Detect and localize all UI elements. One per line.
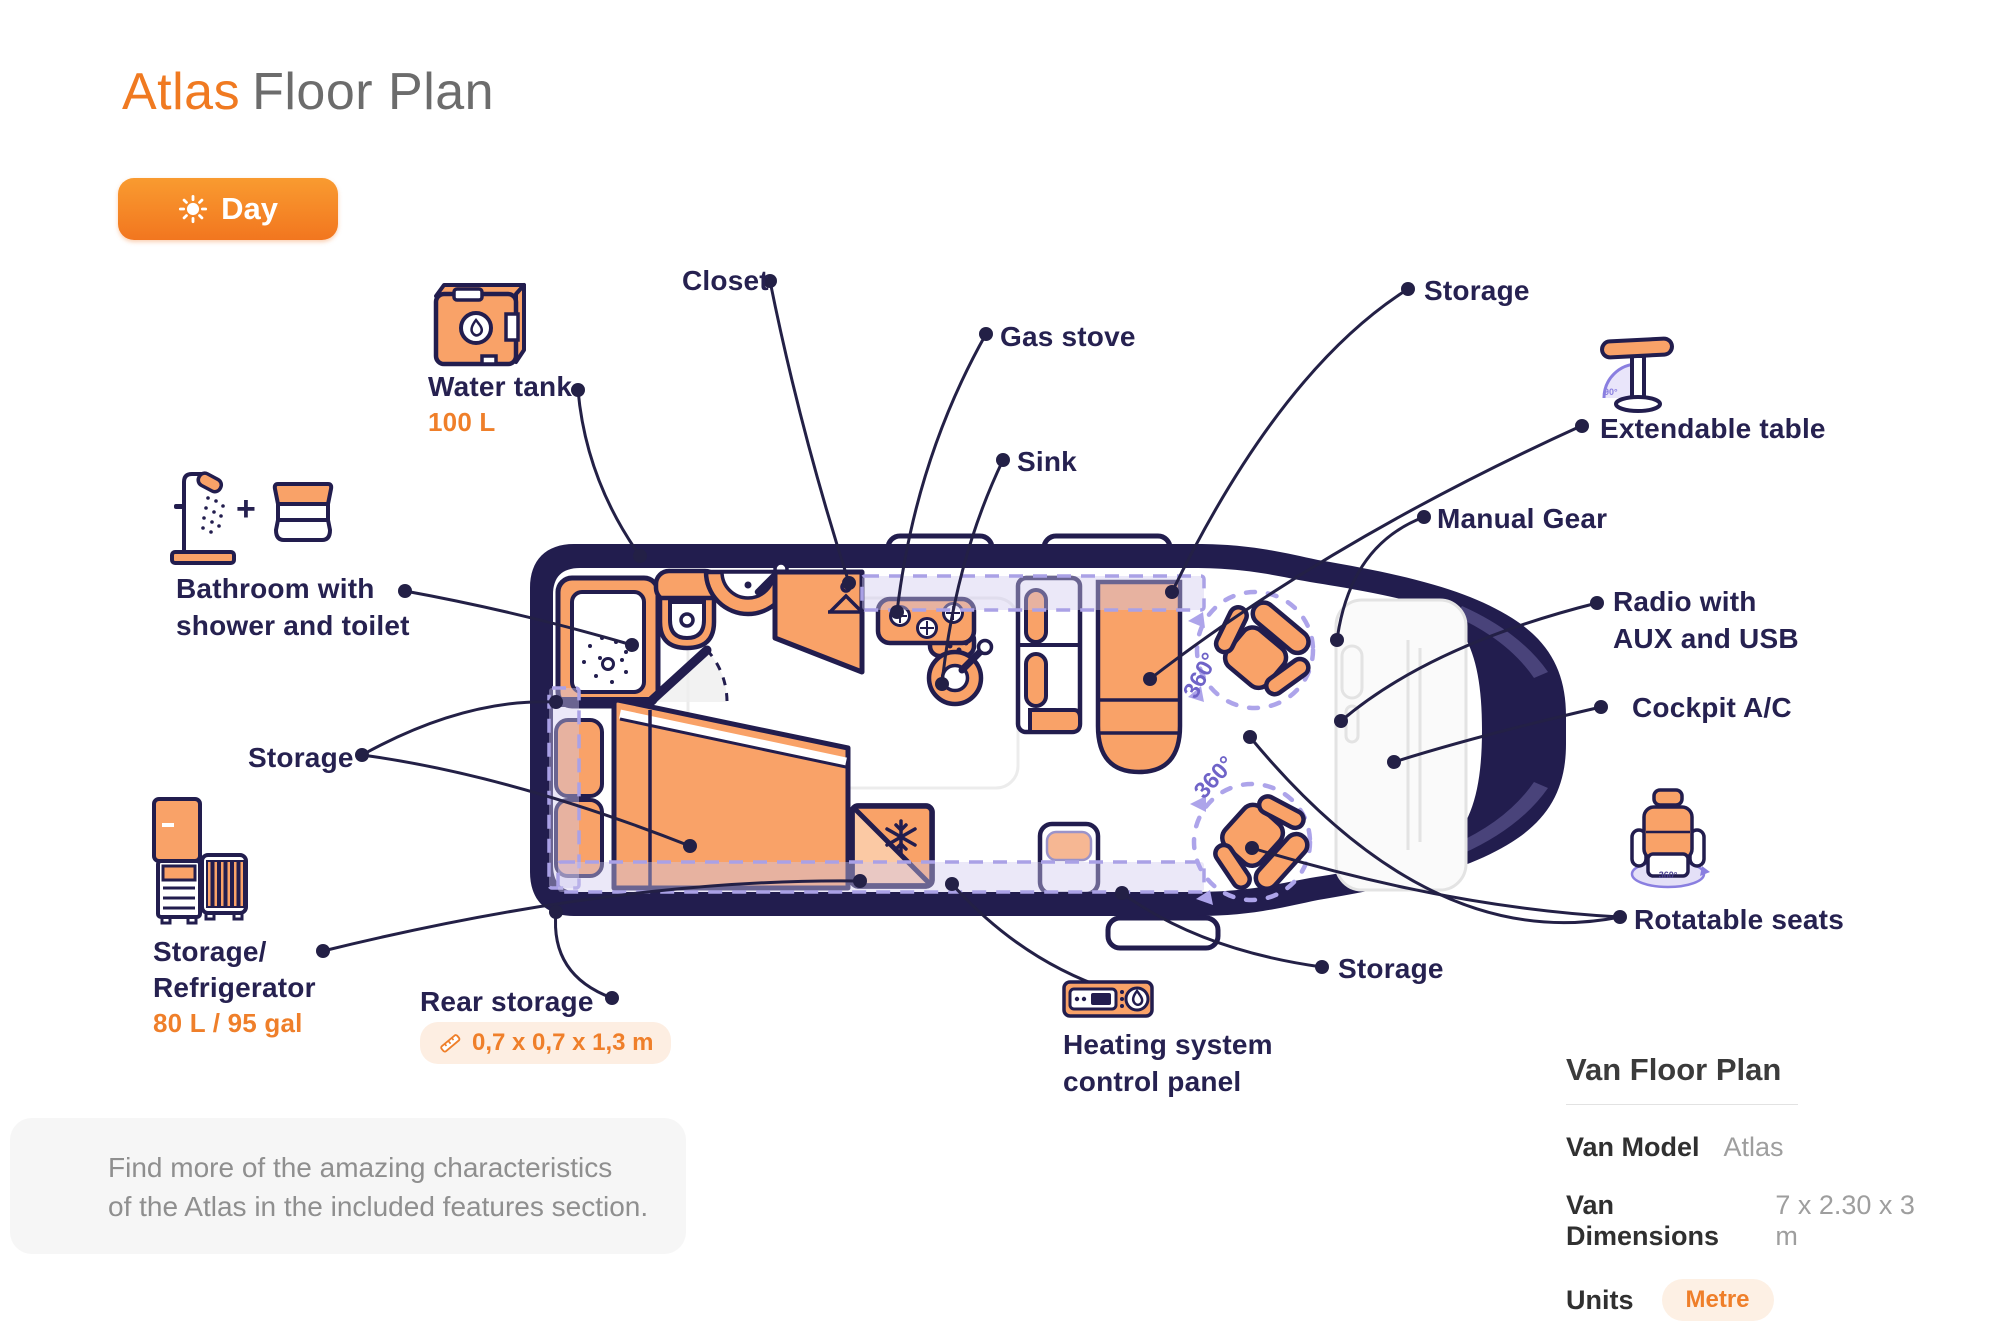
callout-storage-left-a: [362, 702, 556, 755]
van-dimensions-value: 7 x 2.30 x 3 m: [1775, 1190, 1926, 1252]
van-model-value: Atlas: [1724, 1132, 1784, 1163]
page: AtlasFloor Plan Day: [0, 0, 2000, 1334]
van-model-row: Van Model Atlas: [1566, 1132, 1926, 1163]
toilet-icon: [270, 480, 336, 548]
bathroom-label: Bathroom with shower and toilet: [176, 570, 410, 644]
features-note: Find more of the amazing characteristics…: [10, 1118, 686, 1254]
heating-panel-icon: [1062, 980, 1154, 1020]
heating-label: Heating system control panel: [1063, 1026, 1273, 1100]
features-note-line2: of the Atlas in the included features se…: [108, 1187, 686, 1226]
rear-storage-dimensions: 0,7 x 0,7 x 1,3 m: [472, 1029, 653, 1057]
table-angle-text: 90°: [1604, 387, 1618, 397]
seat-rotation-text: 360°: [1659, 870, 1678, 880]
refrigerator-capacity: 80 L / 95 gal: [153, 1006, 316, 1040]
radio-label: Radio with AUX and USB: [1613, 583, 1799, 657]
storage-top-label: Storage: [1424, 272, 1530, 309]
van-info-panel: Van Floor Plan Van Model Atlas Van Dimen…: [1566, 1052, 1926, 1321]
closet-label: Closet: [682, 262, 769, 299]
rotatable-seats-label: Rotatable seats: [1634, 901, 1844, 938]
shower-icon: [170, 468, 242, 568]
van-dimensions-row: Van Dimensions 7 x 2.30 x 3 m: [1566, 1190, 1926, 1252]
water-tank-label: Water tank 100 L: [428, 368, 572, 439]
refrigerator-label-line1: Storage/: [153, 934, 316, 970]
shower-spray: [201, 496, 225, 534]
ruler-icon: [438, 1031, 462, 1055]
units-label: Units: [1566, 1285, 1634, 1316]
storage-left-label: Storage: [248, 739, 354, 776]
bathroom-label-line2: shower and toilet: [176, 607, 410, 644]
callout-closet: [770, 281, 849, 583]
divider: [1566, 1104, 1798, 1105]
heating-label-line2: control panel: [1063, 1063, 1273, 1100]
van-dimensions-label: Van Dimensions: [1566, 1190, 1751, 1252]
sink-label: Sink: [1017, 443, 1077, 480]
callout-water-tank: [578, 390, 640, 556]
storage-cab-label: Storage: [1338, 950, 1444, 987]
rear-storage-dimensions-badge: 0,7 x 0,7 x 1,3 m: [420, 1022, 671, 1064]
van-info-title: Van Floor Plan: [1566, 1052, 1926, 1088]
water-tank-name: Water tank: [428, 368, 572, 405]
features-note-line1: Find more of the amazing characteristics: [108, 1148, 686, 1187]
extendable-table-label: Extendable table: [1600, 410, 1826, 447]
cockpit-ac-label: Cockpit A/C: [1632, 689, 1792, 726]
radio-label-line2: AUX and USB: [1613, 620, 1799, 657]
refrigerator-icon: [150, 795, 250, 927]
radio-label-line1: Radio with: [1613, 583, 1799, 620]
units-row: Units Metre: [1566, 1279, 1926, 1321]
van-model-label: Van Model: [1566, 1132, 1700, 1163]
gas-stove-label: Gas stove: [1000, 318, 1136, 355]
heating-label-line1: Heating system: [1063, 1026, 1273, 1063]
water-tank-capacity: 100 L: [428, 405, 572, 439]
refrigerator-label: Storage/ Refrigerator 80 L / 95 gal: [153, 934, 316, 1040]
plus-icon: +: [236, 490, 256, 529]
refrigerator-label-line2: Refrigerator: [153, 970, 316, 1006]
rotatable-seat-icon: 360°: [1626, 788, 1710, 896]
manual-gear-label: Manual Gear: [1437, 500, 1607, 537]
units-badge: Metre: [1662, 1279, 1774, 1321]
water-tank-icon: [428, 280, 533, 372]
bathroom-label-line1: Bathroom with: [176, 570, 410, 607]
rear-storage-label: Rear storage: [420, 983, 594, 1020]
